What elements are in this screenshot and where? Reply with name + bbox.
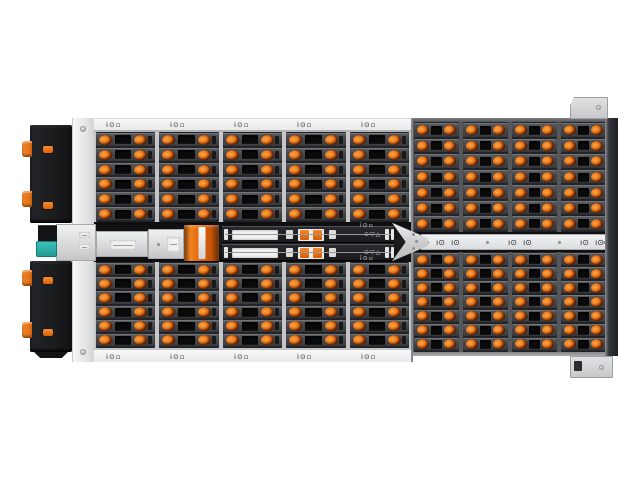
drive-latch-icon bbox=[444, 297, 456, 307]
drive-bay bbox=[463, 185, 508, 200]
drive-latch-icon bbox=[353, 179, 366, 189]
drive-latch-icon bbox=[591, 255, 603, 265]
drive-slot bbox=[480, 269, 491, 278]
bay-end-nub bbox=[275, 294, 279, 302]
tray-endbar bbox=[391, 247, 394, 258]
bay-end-nub bbox=[212, 308, 216, 316]
drive-slot bbox=[115, 293, 131, 302]
drive-latch-icon bbox=[493, 283, 505, 293]
drive-bay bbox=[561, 123, 606, 138]
drive-slot bbox=[369, 210, 385, 219]
drive-latch-icon bbox=[417, 219, 429, 229]
drive-slot bbox=[529, 297, 540, 306]
drive-slot bbox=[431, 173, 442, 182]
bay-end-nub bbox=[275, 336, 279, 344]
drive-latch-icon bbox=[542, 255, 554, 265]
drive-bay bbox=[96, 277, 155, 290]
drive-slot bbox=[369, 322, 385, 331]
screw-icon bbox=[80, 126, 86, 132]
drive-latch-icon bbox=[261, 179, 274, 189]
module-mini-label bbox=[167, 237, 180, 252]
drive-bay bbox=[463, 123, 508, 138]
drive-bay bbox=[561, 281, 606, 294]
drive-slot bbox=[178, 135, 194, 144]
drive-slot bbox=[305, 336, 321, 345]
drive-slot bbox=[178, 279, 194, 288]
drive-latch-icon bbox=[542, 325, 554, 335]
rail-bracket-bottom-right bbox=[570, 356, 613, 378]
drive-latch-icon bbox=[388, 293, 401, 303]
drive-slot bbox=[480, 340, 491, 349]
drive-slot bbox=[578, 312, 589, 321]
bay-end-nub bbox=[275, 322, 279, 330]
drive-latch-icon bbox=[261, 150, 274, 160]
drive-slot bbox=[578, 283, 589, 292]
rail-led-icon: i⊙▫ bbox=[170, 121, 186, 130]
drive-bay bbox=[350, 192, 409, 206]
drive-bay bbox=[512, 253, 557, 266]
drive-latch-icon bbox=[162, 209, 175, 219]
drive-latch-icon bbox=[444, 269, 456, 279]
drive-latch-icon bbox=[198, 321, 211, 331]
drive-slot bbox=[178, 322, 194, 331]
latch-label bbox=[79, 232, 90, 238]
bay-end-nub bbox=[402, 180, 406, 188]
drive-slot bbox=[578, 219, 589, 228]
bay-end-nub bbox=[212, 180, 216, 188]
drive-latch-icon bbox=[325, 150, 338, 160]
drive-latch-icon bbox=[417, 141, 429, 151]
drive-latch-icon bbox=[417, 125, 429, 135]
drive-latch-icon bbox=[466, 219, 478, 229]
drive-latch-icon bbox=[198, 265, 211, 275]
drive-latch-icon bbox=[515, 297, 527, 307]
drive-slot bbox=[115, 180, 131, 189]
drive-latch-icon bbox=[325, 307, 338, 317]
drive-latch-icon bbox=[515, 311, 527, 321]
drive-bay bbox=[350, 207, 409, 221]
drive-latch-icon bbox=[134, 279, 147, 289]
drive-column bbox=[96, 262, 155, 348]
rear-panel-bottom bbox=[30, 261, 72, 352]
drive-slot bbox=[115, 265, 131, 274]
drive-latch-icon bbox=[198, 179, 211, 189]
drive-bay bbox=[561, 338, 606, 351]
drive-block-right: ı⊙ ı⊙ ı⊙ ı⊙ ı⊙ ı⊙ bbox=[413, 118, 607, 356]
bay-end-nub bbox=[402, 266, 406, 274]
drive-latch-icon bbox=[542, 339, 554, 349]
drive-latch-icon bbox=[261, 165, 274, 175]
drive-bay bbox=[96, 291, 155, 304]
rail-bracket-top-right bbox=[570, 97, 608, 119]
drive-slot bbox=[369, 195, 385, 204]
drive-bay bbox=[414, 295, 459, 308]
drive-bay bbox=[463, 201, 508, 216]
drive-bay bbox=[463, 253, 508, 266]
drive-latch-icon bbox=[226, 265, 239, 275]
drive-latch-icon bbox=[261, 335, 274, 345]
drive-latch-icon bbox=[591, 283, 603, 293]
drive-slot bbox=[431, 188, 442, 197]
drive-latch-icon bbox=[515, 156, 527, 166]
drive-slot bbox=[242, 165, 258, 174]
drive-latch-icon bbox=[134, 321, 147, 331]
drive-bay bbox=[414, 310, 459, 323]
drive-bay bbox=[96, 163, 155, 177]
screw-dot-icon bbox=[412, 247, 415, 250]
bay-end-nub bbox=[402, 210, 406, 218]
bay-end-nub bbox=[339, 180, 343, 188]
drive-latch-icon bbox=[226, 307, 239, 317]
drive-latch-icon bbox=[515, 325, 527, 335]
drive-latch-icon bbox=[198, 150, 211, 160]
bay-end-nub bbox=[275, 266, 279, 274]
drive-bay bbox=[463, 324, 508, 337]
drive-bay bbox=[561, 185, 606, 200]
drive-slot bbox=[242, 322, 258, 331]
drive-latch-icon bbox=[162, 179, 175, 189]
latch-clip bbox=[38, 225, 57, 242]
drive-slot bbox=[178, 265, 194, 274]
drive-latch-icon bbox=[261, 321, 274, 331]
drive-latch-icon bbox=[289, 321, 302, 331]
drive-latch-icon bbox=[226, 179, 239, 189]
drive-latch-icon bbox=[542, 203, 554, 213]
orange-tab bbox=[22, 270, 32, 286]
bay-end-nub bbox=[402, 336, 406, 344]
drive-slot bbox=[480, 141, 491, 150]
drive-bay bbox=[286, 306, 345, 319]
drive-latch-icon bbox=[493, 188, 505, 198]
rail-led-icon: i⊙▫ bbox=[234, 353, 250, 362]
drive-slot bbox=[369, 150, 385, 159]
drive-bay bbox=[463, 310, 508, 323]
drive-slot bbox=[431, 297, 442, 306]
screw-dot-icon bbox=[558, 241, 561, 244]
drive-bay bbox=[286, 192, 345, 206]
bay-end-nub bbox=[212, 151, 216, 159]
drive-latch-icon bbox=[162, 293, 175, 303]
drive-latch-icon bbox=[162, 194, 175, 204]
drive-slot bbox=[480, 157, 491, 166]
drive-latch-icon bbox=[261, 307, 274, 317]
drive-bay bbox=[414, 253, 459, 266]
drive-latch-icon bbox=[417, 156, 429, 166]
drive-latch-icon bbox=[417, 283, 429, 293]
drive-column bbox=[512, 252, 557, 352]
drive-latch-icon bbox=[515, 141, 527, 151]
drive-latch-icon bbox=[198, 307, 211, 317]
drive-slot bbox=[480, 204, 491, 213]
drive-grid-right-bottom bbox=[413, 252, 607, 352]
drive-bay bbox=[561, 267, 606, 280]
drive-slot bbox=[529, 326, 540, 335]
drive-latch-icon bbox=[515, 219, 527, 229]
drive-bay bbox=[223, 291, 282, 304]
drive-latch-icon bbox=[134, 307, 147, 317]
drive-latch-icon bbox=[289, 307, 302, 317]
drive-latch-icon bbox=[162, 265, 175, 275]
drive-slot bbox=[529, 126, 540, 135]
drive-latch-icon bbox=[162, 307, 175, 317]
drive-latch-icon bbox=[493, 325, 505, 335]
bay-end-nub bbox=[402, 136, 406, 144]
bay-end-nub bbox=[275, 195, 279, 203]
drive-latch-icon bbox=[591, 269, 603, 279]
drive-latch-icon bbox=[289, 293, 302, 303]
drive-latch-icon bbox=[466, 269, 478, 279]
drive-latch-icon bbox=[493, 255, 505, 265]
drive-slot bbox=[529, 141, 540, 150]
drive-bay bbox=[561, 324, 606, 337]
drive-latch-icon bbox=[226, 165, 239, 175]
drive-slot bbox=[242, 265, 258, 274]
drive-bay bbox=[159, 133, 218, 147]
drive-latch-icon bbox=[353, 209, 366, 219]
drive-latch-icon bbox=[564, 255, 576, 265]
drive-latch-icon bbox=[515, 269, 527, 279]
drive-bay bbox=[286, 177, 345, 191]
bay-end-nub bbox=[148, 210, 152, 218]
drive-bay bbox=[463, 338, 508, 351]
indicator-led-icon: ı⊙ bbox=[580, 237, 589, 248]
drive-bay bbox=[512, 338, 557, 351]
bay-end-nub bbox=[148, 166, 152, 174]
drive-latch-icon bbox=[417, 311, 429, 321]
drive-bay bbox=[96, 192, 155, 206]
drive-slot bbox=[480, 173, 491, 182]
drive-latch-icon bbox=[353, 321, 366, 331]
drive-latch-icon bbox=[417, 203, 429, 213]
drive-bay bbox=[223, 306, 282, 319]
drive-latch-icon bbox=[198, 135, 211, 145]
drive-latch-icon bbox=[198, 279, 211, 289]
drive-bay bbox=[223, 277, 282, 290]
drive-latch-icon bbox=[198, 194, 211, 204]
bay-end-nub bbox=[212, 336, 216, 344]
drive-slot bbox=[305, 180, 321, 189]
drive-bay bbox=[463, 170, 508, 185]
drive-bay bbox=[286, 263, 345, 276]
bay-end-nub bbox=[402, 294, 406, 302]
drive-slot bbox=[305, 135, 321, 144]
drive-latch-icon bbox=[388, 279, 401, 289]
drive-bay bbox=[512, 185, 557, 200]
drive-slot bbox=[431, 219, 442, 228]
drive-latch-icon bbox=[564, 297, 576, 307]
drive-slot bbox=[115, 150, 131, 159]
drive-latch-icon bbox=[444, 156, 456, 166]
drive-column bbox=[286, 262, 345, 348]
drive-latch-icon bbox=[134, 335, 147, 345]
drive-latch-icon bbox=[444, 188, 456, 198]
drive-latch-icon bbox=[515, 203, 527, 213]
rail-led-icon: i⊙▫ bbox=[361, 353, 377, 362]
drive-latch-icon bbox=[226, 150, 239, 160]
drive-latch-icon bbox=[515, 255, 527, 265]
drive-bay bbox=[561, 253, 606, 266]
bay-end-nub bbox=[148, 308, 152, 316]
drive-bay bbox=[512, 267, 557, 280]
drive-latch-icon bbox=[515, 283, 527, 293]
drive-latch-icon bbox=[134, 293, 147, 303]
storage-enclosure-photo: i⊙▫ i⊙▫ i⊙▫ i⊙▫ i⊙▫ bbox=[0, 0, 640, 480]
drive-bay bbox=[350, 177, 409, 191]
drive-bay bbox=[561, 201, 606, 216]
latch-label bbox=[79, 244, 90, 250]
drive-latch-icon bbox=[134, 194, 147, 204]
screw-icon bbox=[599, 365, 604, 370]
drive-slot bbox=[529, 188, 540, 197]
drive-bay bbox=[96, 133, 155, 147]
bay-end-nub bbox=[148, 336, 152, 344]
drive-latch-icon bbox=[564, 188, 576, 198]
drive-slot bbox=[178, 165, 194, 174]
drive-slot bbox=[529, 173, 540, 182]
drive-latch-icon bbox=[162, 165, 175, 175]
drive-latch-icon bbox=[261, 209, 274, 219]
bar-indicator-group: ı⊙ ı⊙ bbox=[436, 237, 460, 248]
drive-latch-icon bbox=[466, 297, 478, 307]
drive-column bbox=[159, 262, 218, 348]
drive-latch-icon bbox=[417, 325, 429, 335]
drive-latch-icon bbox=[564, 339, 576, 349]
drive-latch-icon bbox=[417, 172, 429, 182]
drive-bay bbox=[512, 170, 557, 185]
drive-latch-icon bbox=[444, 172, 456, 182]
bay-end-nub bbox=[402, 322, 406, 330]
drive-column bbox=[223, 262, 282, 348]
drive-slot bbox=[305, 265, 321, 274]
drive-latch-icon bbox=[542, 219, 554, 229]
drive-latch-icon bbox=[99, 150, 112, 160]
drive-latch-icon bbox=[466, 339, 478, 349]
drive-latch-icon bbox=[444, 141, 456, 151]
drive-latch-icon bbox=[493, 125, 505, 135]
drive-latch-icon bbox=[325, 135, 338, 145]
drive-column bbox=[223, 132, 282, 222]
drive-latch-icon bbox=[289, 135, 302, 145]
bay-end-nub bbox=[339, 322, 343, 330]
drive-bay bbox=[463, 154, 508, 169]
drive-grid-right-top bbox=[413, 122, 607, 232]
drive-latch-icon bbox=[493, 311, 505, 321]
bay-end-nub bbox=[339, 294, 343, 302]
drive-latch-icon bbox=[325, 293, 338, 303]
indicator-led-icon: ı⊙ bbox=[508, 237, 517, 248]
bay-end-nub bbox=[148, 195, 152, 203]
drive-latch-icon bbox=[99, 335, 112, 345]
drive-latch-icon bbox=[515, 339, 527, 349]
bay-end-nub bbox=[275, 166, 279, 174]
drive-bay bbox=[286, 133, 345, 147]
drive-latch-icon bbox=[444, 125, 456, 135]
drive-bay bbox=[561, 139, 606, 154]
bay-end-nub bbox=[275, 210, 279, 218]
drive-latch-icon bbox=[162, 135, 175, 145]
drive-slot bbox=[115, 135, 131, 144]
drive-bay bbox=[512, 324, 557, 337]
drive-latch-icon bbox=[493, 269, 505, 279]
drive-latch-icon bbox=[493, 141, 505, 151]
drive-slot bbox=[369, 336, 385, 345]
drive-bay bbox=[159, 163, 218, 177]
drive-latch-icon bbox=[353, 279, 366, 289]
drive-slot bbox=[431, 326, 442, 335]
rail-led-icon: i⊙▫ bbox=[170, 353, 186, 362]
drive-latch-icon bbox=[493, 172, 505, 182]
drive-latch-icon bbox=[261, 135, 274, 145]
drive-latch-icon bbox=[134, 150, 147, 160]
drive-latch-icon bbox=[493, 156, 505, 166]
drive-slot bbox=[178, 293, 194, 302]
drive-bay bbox=[159, 192, 218, 206]
drive-slot bbox=[529, 312, 540, 321]
drive-latch-icon bbox=[564, 325, 576, 335]
drive-bay bbox=[512, 201, 557, 216]
drive-slot bbox=[242, 308, 258, 317]
bay-end-nub bbox=[339, 266, 343, 274]
drive-latch-icon bbox=[444, 283, 456, 293]
drive-slot bbox=[305, 293, 321, 302]
orange-tab bbox=[22, 322, 32, 338]
drive-bay bbox=[350, 133, 409, 147]
drive-latch-icon bbox=[99, 265, 112, 275]
bay-end-nub bbox=[212, 195, 216, 203]
drive-latch-icon bbox=[493, 297, 505, 307]
drive-slot bbox=[369, 135, 385, 144]
drive-slot bbox=[369, 165, 385, 174]
io-module-cap bbox=[148, 229, 184, 259]
drive-bay bbox=[512, 295, 557, 308]
drive-latch-icon bbox=[444, 311, 456, 321]
teal-release-tab bbox=[36, 241, 57, 257]
bay-end-nub bbox=[339, 166, 343, 174]
drive-latch-icon bbox=[564, 156, 576, 166]
bay-end-nub bbox=[275, 151, 279, 159]
drive-slot bbox=[529, 283, 540, 292]
drive-bay bbox=[286, 163, 345, 177]
bay-end-nub bbox=[212, 210, 216, 218]
drive-slot bbox=[578, 297, 589, 306]
drive-latch-icon bbox=[564, 125, 576, 135]
drive-latch-icon bbox=[261, 265, 274, 275]
drive-latch-icon bbox=[388, 209, 401, 219]
bay-end-nub bbox=[402, 308, 406, 316]
screw-icon bbox=[596, 105, 601, 110]
bay-end-nub bbox=[275, 180, 279, 188]
orange-handle-mark bbox=[43, 146, 53, 153]
drive-bay bbox=[512, 216, 557, 231]
drive-slot bbox=[369, 180, 385, 189]
drive-latch-icon bbox=[542, 188, 554, 198]
drive-latch-icon bbox=[226, 279, 239, 289]
bay-end-nub bbox=[275, 280, 279, 288]
drive-slot bbox=[305, 210, 321, 219]
drive-slot bbox=[480, 188, 491, 197]
drive-slot bbox=[115, 308, 131, 317]
drive-latch-icon bbox=[591, 125, 603, 135]
drive-bay bbox=[414, 201, 459, 216]
rail-led-icon: i⊙▫ bbox=[106, 121, 122, 130]
drive-bay bbox=[414, 267, 459, 280]
drive-slot bbox=[305, 322, 321, 331]
bay-end-nub bbox=[402, 166, 406, 174]
drive-slot bbox=[431, 283, 442, 292]
drive-slot bbox=[242, 150, 258, 159]
drive-bay bbox=[96, 320, 155, 333]
drawer-latch-housing bbox=[56, 224, 96, 261]
